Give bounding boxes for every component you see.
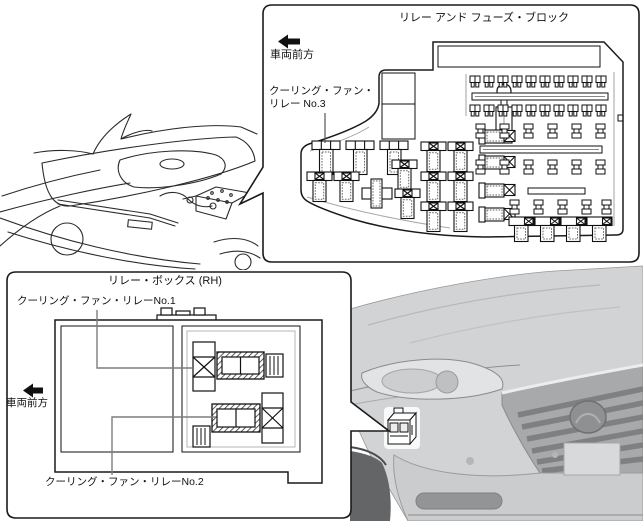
service-manual-illustration: リレー アンド フューズ・ブロック 車両前方 クーリング・ファン・ リレー No… [0, 0, 643, 521]
cooling-fan-relay-no3-label-line1: クーリング・ファン・ [269, 85, 374, 98]
license-plate-area [564, 443, 620, 475]
relay-box-diagram [55, 308, 322, 483]
brand-badge [570, 401, 606, 433]
fuse-block-panel-title: リレー アンド フューズ・ブロック [354, 12, 614, 25]
fog-lamp-slot [416, 493, 502, 509]
cooling-fan-relay-no3-label-line2: リレー No.3 [269, 98, 326, 111]
strut-cap [51, 223, 83, 255]
fuse-block-direction-label: 車両前方 [270, 49, 314, 62]
cooling-fan-relay-no1-label: クーリング・ファン・リレーNo.1 [17, 295, 176, 308]
relay-fuse-block-panel [230, 0, 643, 265]
cooling-fan-relay-no2-label: クーリング・ファン・リレーNo.2 [45, 476, 204, 489]
engine-bay-illustration [0, 0, 265, 270]
relay-box-direction-label: 車両前方 [6, 397, 48, 410]
relay-box-panel-title: リレー・ボックス (RH) [65, 275, 265, 288]
